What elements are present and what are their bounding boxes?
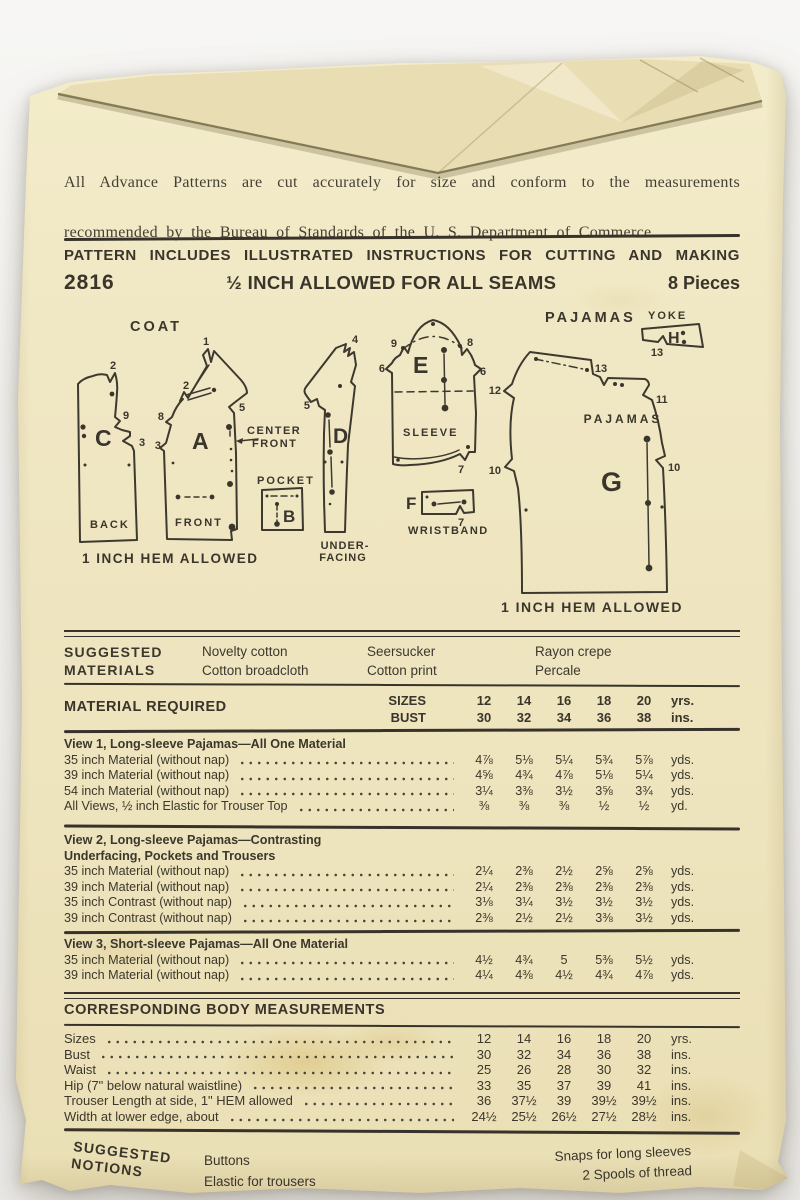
measurement-value: 36: [464, 1093, 504, 1109]
yardage-value: 2½: [544, 911, 584, 927]
dot-leader: [238, 789, 454, 799]
yardage-value: 5⅛: [504, 753, 544, 769]
pattern-number-row: 2816 ½ INCH ALLOWED FOR ALL SEAMS 8 Piec…: [64, 271, 740, 295]
measurement-value: 39½: [584, 1093, 624, 1109]
table-row-label: 35 inch Contrast (without nap): [64, 895, 464, 911]
table-row-label: 35 inch Material (without nap): [64, 753, 464, 769]
material-item: Seersucker: [367, 644, 435, 659]
unit-label: ins.: [664, 1109, 724, 1125]
measurement-value: 27½: [584, 1109, 624, 1125]
yardage-value: 3½: [584, 895, 624, 911]
notch-number: 13: [651, 347, 663, 359]
view-1-table: View 1, Long-sleeve Pajamas—All One Mate…: [64, 737, 724, 815]
measurement-value: 38: [624, 1047, 664, 1063]
measurement-value: 37½: [504, 1093, 544, 1109]
yardage-value: 2½: [544, 864, 584, 880]
notch-number: 9: [123, 410, 129, 422]
view-title: View 1, Long-sleeve Pajamas—All One Mate…: [64, 737, 724, 753]
coat-section-label: COAT: [130, 319, 182, 335]
yardage-value: 4½: [464, 953, 504, 969]
divider-rule: [64, 728, 740, 733]
view-3-table: View 3, Short-sleeve Pajamas—All One Mat…: [64, 937, 724, 984]
table-row-label: Waist: [64, 1062, 464, 1078]
row-label: 35 inch Material (without nap): [64, 864, 229, 880]
notch-number: 4: [352, 334, 359, 346]
dot-leader: [238, 974, 454, 984]
unit-label: yd.: [664, 799, 724, 815]
envelope-shadow-wrap: All Advance Patterns are cut accurately …: [0, 0, 800, 1200]
view-2-table: View 2, Long-sleeve Pajamas—Contrasting …: [64, 833, 724, 926]
yardage-value: 4⅞: [624, 968, 664, 984]
notch-number: 3: [155, 440, 161, 452]
measurement-value: 14: [504, 1031, 544, 1047]
notion-item: Elastic for trousers: [204, 1174, 316, 1189]
yardage-value: 2⅜: [464, 911, 504, 927]
piece-letter: E: [413, 352, 428, 378]
measurement-value: 24½: [464, 1109, 504, 1125]
notions-right-items: Snaps for long sleeves2 Spools of thread: [555, 1141, 693, 1187]
yardage-value: 3¼: [504, 895, 544, 911]
dot-leader: [238, 774, 454, 784]
yardage-value: 2⅜: [624, 880, 664, 896]
notch-number: 9: [391, 338, 397, 350]
suggested-notions: SUGGESTEDNOTIONS ButtonsElastic for trou…: [64, 1138, 740, 1198]
view-title: Underfacing, Pockets and Trousers: [64, 849, 724, 865]
yoke-section-label: YOKE: [648, 310, 687, 322]
unit-label: yrs.: [664, 1031, 724, 1047]
row-label: Bust: [64, 1047, 90, 1063]
piece-name: FRONT: [175, 517, 223, 529]
material-item: Rayon crepe: [535, 644, 612, 659]
yardage-value: ½: [624, 799, 664, 815]
measurement-value: 36: [584, 1047, 624, 1063]
table-row-label: 54 inch Material (without nap): [64, 784, 464, 800]
measurement-value: 25: [464, 1062, 504, 1078]
material-required-header: MATERIAL REQUIRED SIZES 1214161820yrs. B…: [64, 692, 740, 726]
yardage-value: 3¼: [464, 784, 504, 800]
materials-column: SeersuckerCotton print: [367, 642, 437, 680]
notch-number: 10: [489, 465, 501, 477]
measurement-value: 28½: [624, 1109, 664, 1125]
yardage-value: 3⅝: [584, 784, 624, 800]
materials-label-line: SUGGESTED: [64, 644, 163, 660]
piece-sleeve: 9 8 6 6 7 E SLEEVE: [379, 320, 486, 476]
bust-value: 32: [504, 709, 544, 726]
suggested-materials: SUGGESTEDMATERIALS Novelty cottonCotton …: [64, 642, 740, 686]
piece-letter: D: [333, 425, 348, 448]
measurement-value: 39: [584, 1078, 624, 1094]
yardage-value: 5⅜: [584, 953, 624, 969]
unit-label: ins.: [664, 1093, 724, 1109]
table-row-label: Hip (7" below natural waistline): [64, 1078, 464, 1094]
row-label: Hip (7" below natural waistline): [64, 1078, 242, 1094]
center-front-label: FRONT: [252, 438, 297, 450]
dot-leader: [302, 1099, 454, 1109]
body-measurements-table: Sizes1214161820yrs. Bust3032343638ins. W…: [64, 1031, 724, 1125]
piece-name: POCKET: [257, 475, 315, 487]
notch-number: 10: [668, 462, 680, 474]
measurement-value: 33: [464, 1078, 504, 1094]
measurement-value: 26½: [544, 1109, 584, 1125]
row-label: 39 inch Contrast (without nap): [64, 911, 232, 927]
row-label: 35 inch Material (without nap): [64, 753, 229, 769]
yardage-value: ⅜: [464, 799, 504, 815]
yardage-value: 4⅜: [504, 968, 544, 984]
measurement-value: 25½: [504, 1109, 544, 1125]
bust-value: 30: [464, 709, 504, 726]
piece-name: UNDER-: [321, 540, 370, 552]
seam-allowance-note: ½ INCH ALLOWED FOR ALL SEAMS: [115, 272, 668, 294]
unit-label: yds.: [664, 911, 724, 927]
row-label: Trouser Length at side, 1" HEM allowed: [64, 1093, 293, 1109]
piece-letter: G: [601, 467, 622, 497]
body-measurements-title: CORRESPONDING BODY MEASUREMENTS: [64, 1002, 740, 1018]
photo-background: All Advance Patterns are cut accurately …: [0, 0, 800, 1200]
piece-letter: F: [406, 494, 416, 513]
yardage-value: 5: [544, 953, 584, 969]
table-row-label: 39 inch Material (without nap): [64, 880, 464, 896]
table-row-label: 35 inch Material (without nap): [64, 864, 464, 880]
material-item: Novelty cotton: [202, 644, 288, 659]
pattern-envelope-back: All Advance Patterns are cut accurately …: [0, 0, 800, 1200]
notch-number: 8: [158, 411, 164, 423]
yardage-value: 2¼: [464, 880, 504, 896]
piece-letter: H: [668, 330, 680, 347]
measurement-value: 28: [544, 1062, 584, 1078]
dot-leader: [238, 885, 454, 895]
unit-label: yrs.: [664, 692, 724, 709]
yardage-value: 4⅞: [544, 768, 584, 784]
piece-pocket: POCKET B: [257, 475, 315, 530]
row-label: 39 inch Material (without nap): [64, 968, 229, 984]
yardage-value: 3¾: [624, 784, 664, 800]
measurement-value: 18: [584, 1031, 624, 1047]
center-front-label: CENTER: [247, 425, 301, 437]
printed-content: All Advance Patterns are cut accurately …: [0, 0, 800, 1200]
piece-pajama-pant: 12 13 11 10 10 PAJAMAS G: [489, 352, 681, 593]
notch-number: 2: [110, 360, 116, 372]
notch-number: 5: [304, 400, 310, 412]
unit-label: yds.: [664, 895, 724, 911]
yardage-value: 2⅜: [584, 880, 624, 896]
yardage-value: 3½: [624, 911, 664, 927]
unit-label: yds.: [664, 880, 724, 896]
piece-letter: C: [95, 425, 112, 451]
yardage-value: ½: [584, 799, 624, 815]
row-label: 39 inch Material (without nap): [64, 768, 229, 784]
measurement-value: 32: [624, 1062, 664, 1078]
measurement-value: 20: [624, 1031, 664, 1047]
yardage-value: 2½: [504, 911, 544, 927]
size-value: 16: [544, 692, 584, 709]
unit-label: yds.: [664, 864, 724, 880]
yardage-value: 3½: [624, 895, 664, 911]
dot-leader: [228, 1115, 454, 1125]
row-label: 35 inch Material (without nap): [64, 953, 229, 969]
piece-name: FACING: [319, 552, 367, 564]
yardage-value: 5¼: [624, 768, 664, 784]
notch-number: 6: [480, 366, 486, 378]
divider-rule: [64, 630, 740, 637]
dot-leader: [238, 870, 454, 880]
notion-item: 2 Spools of thread: [583, 1163, 693, 1183]
dot-leader: [241, 916, 454, 926]
yardage-value: ⅜: [544, 799, 584, 815]
view-title: View 2, Long-sleeve Pajamas—Contrasting: [64, 833, 724, 849]
material-required-title: MATERIAL REQUIRED: [64, 699, 227, 715]
table-row-label: 35 inch Material (without nap): [64, 953, 464, 969]
measurement-value: 35: [504, 1078, 544, 1094]
dot-leader: [238, 758, 454, 768]
unit-label: ins.: [664, 1047, 724, 1063]
table-row-label: Trouser Length at side, 1" HEM allowed: [64, 1093, 464, 1109]
measurement-value: 32: [504, 1047, 544, 1063]
notch-number: 13: [595, 363, 607, 375]
dot-leader: [105, 1037, 454, 1047]
piece-wristband: F 7 WRISTBAND: [406, 490, 489, 537]
unit-label: yds.: [664, 784, 724, 800]
unit-label: ins.: [664, 1078, 724, 1094]
materials-column: Novelty cottonCotton broadcloth: [202, 642, 309, 680]
measurement-value: 16: [544, 1031, 584, 1047]
row-label: Width at lower edge, about: [64, 1109, 219, 1125]
yardage-value: 2⅜: [504, 880, 544, 896]
yardage-value: 5¾: [584, 753, 624, 769]
bust-value: 38: [624, 709, 664, 726]
row-label: 35 inch Contrast (without nap): [64, 895, 232, 911]
yardage-value: 5½: [624, 953, 664, 969]
divider-rule: [64, 825, 740, 830]
yardage-value: 2⅝: [584, 864, 624, 880]
piece-underfacing: 4 5 D UNDER- FACING: [304, 334, 370, 564]
measurement-value: 34: [544, 1047, 584, 1063]
dot-leader: [238, 958, 454, 968]
yardage-value: 2⅝: [624, 864, 664, 880]
intro-line-1: All Advance Patterns are cut accurately …: [64, 170, 740, 220]
notch-number: 11: [656, 394, 668, 406]
notch-number: 2: [183, 380, 189, 392]
yardage-value: 3½: [544, 895, 584, 911]
table-row-label: Width at lower edge, about: [64, 1109, 464, 1125]
unit-label: yds.: [664, 953, 724, 969]
piece-letter: A: [192, 428, 209, 454]
coat-hem-note: 1 INCH HEM ALLOWED: [82, 551, 259, 566]
yardage-value: 4⅞: [464, 753, 504, 769]
yardage-value: 4¾: [584, 968, 624, 984]
yardage-value: 3⅜: [584, 911, 624, 927]
material-item: Cotton broadcloth: [202, 663, 309, 678]
yardage-value: 3⅜: [504, 784, 544, 800]
materials-label: SUGGESTEDMATERIALS: [64, 643, 163, 679]
table-row-label: Bust: [64, 1047, 464, 1063]
dot-leader: [241, 901, 454, 911]
notch-number: 8: [467, 337, 473, 349]
notions-label: SUGGESTEDNOTIONS: [70, 1138, 172, 1184]
row-label: Waist: [64, 1062, 96, 1078]
material-item: Percale: [535, 663, 581, 678]
piece-back: 2 9 3 C BACK: [78, 360, 145, 542]
yardage-value: 4¾: [504, 953, 544, 969]
divider-rule: [64, 929, 740, 934]
table-row-label: Sizes: [64, 1031, 464, 1047]
piece-front: 1 2 8 3 5 A FRONT CENTER FRONT: [155, 336, 301, 540]
row-label: 54 inch Material (without nap): [64, 784, 229, 800]
yardage-value: 2¼: [464, 864, 504, 880]
table-row-label: 39 inch Contrast (without nap): [64, 911, 464, 927]
materials-column: Rayon crepePercale: [535, 642, 612, 680]
divider-rule: [64, 1024, 740, 1028]
yardage-value: 3⅛: [464, 895, 504, 911]
unit-label: ins.: [664, 709, 724, 726]
notion-item: Snaps for long sleeves: [555, 1143, 692, 1164]
notch-number: 5: [239, 402, 245, 414]
measurement-value: 26: [504, 1062, 544, 1078]
yardage-value: 4¾: [504, 768, 544, 784]
row-label: All Views, ½ inch Elastic for Trouser To…: [64, 799, 288, 815]
bust-value: 34: [544, 709, 584, 726]
dot-leader: [105, 1068, 454, 1078]
dot-leader: [297, 805, 454, 815]
size-value: 14: [504, 692, 544, 709]
row-label: Sizes: [64, 1031, 96, 1047]
piece-letter: B: [283, 507, 295, 526]
notion-item: Buttons: [204, 1153, 250, 1168]
measurement-value: 37: [544, 1078, 584, 1094]
pajamas-section-label: PAJAMAS: [545, 310, 636, 326]
measurement-value: 39½: [624, 1093, 664, 1109]
unit-label: yds.: [664, 968, 724, 984]
piece-name: PAJAMAS: [584, 412, 663, 426]
notch-number: 3: [139, 437, 145, 449]
material-item: Cotton print: [367, 663, 437, 678]
size-value: 18: [584, 692, 624, 709]
pattern-number: 2816: [64, 271, 115, 295]
pajamas-hem-note: 1 INCH HEM ALLOWED: [501, 599, 683, 615]
yardage-value: 2⅜: [504, 864, 544, 880]
measurement-value: 41: [624, 1078, 664, 1094]
dot-leader: [99, 1052, 454, 1062]
measurement-value: 30: [464, 1047, 504, 1063]
yardage-value: 4½: [544, 968, 584, 984]
notch-number: 12: [489, 385, 501, 397]
measurement-value: 39: [544, 1093, 584, 1109]
view-title: View 3, Short-sleeve Pajamas—All One Mat…: [64, 937, 724, 953]
dot-leader: [251, 1083, 454, 1093]
yardage-value: 5⅛: [584, 768, 624, 784]
notch-number: 7: [458, 464, 464, 476]
measurement-value: 30: [584, 1062, 624, 1078]
row-label: 39 inch Material (without nap): [64, 880, 229, 896]
table-row-label: All Views, ½ inch Elastic for Trouser To…: [64, 799, 464, 815]
piece-count: 8 Pieces: [668, 273, 740, 294]
divider-rule: [64, 992, 740, 999]
unit-label: yds.: [664, 768, 724, 784]
yardage-value: 2⅜: [544, 880, 584, 896]
unit-label: yds.: [664, 753, 724, 769]
unit-label: ins.: [664, 1062, 724, 1078]
piece-yoke: H 13: [642, 324, 703, 359]
piece-name: WRISTBAND: [408, 525, 489, 537]
notch-number: 1: [203, 336, 209, 348]
yardage-value: 5¼: [544, 753, 584, 769]
materials-label-line: MATERIALS: [64, 662, 155, 678]
table-row-label: 39 inch Material (without nap): [64, 768, 464, 784]
yardage-value: ⅜: [504, 799, 544, 815]
measurement-value: 12: [464, 1031, 504, 1047]
size-value: 20: [624, 692, 664, 709]
notch-number: 6: [379, 363, 385, 375]
yardage-value: 5⅞: [624, 753, 664, 769]
yardage-value: 3½: [544, 784, 584, 800]
bust-value: 36: [584, 709, 624, 726]
piece-name: BACK: [90, 519, 130, 531]
table-row-label: 39 inch Material (without nap): [64, 968, 464, 984]
piece-name: SLEEVE: [403, 427, 458, 439]
pattern-pieces-diagram: COAT PAJAMAS YOKE 2 9 3 C BACK: [55, 303, 745, 625]
divider-rule: [64, 1128, 740, 1134]
yardage-value: 4⅝: [464, 768, 504, 784]
notions-left-items: ButtonsElastic for trousers: [204, 1150, 316, 1192]
yardage-value: 4¼: [464, 968, 504, 984]
size-value: 12: [464, 692, 504, 709]
